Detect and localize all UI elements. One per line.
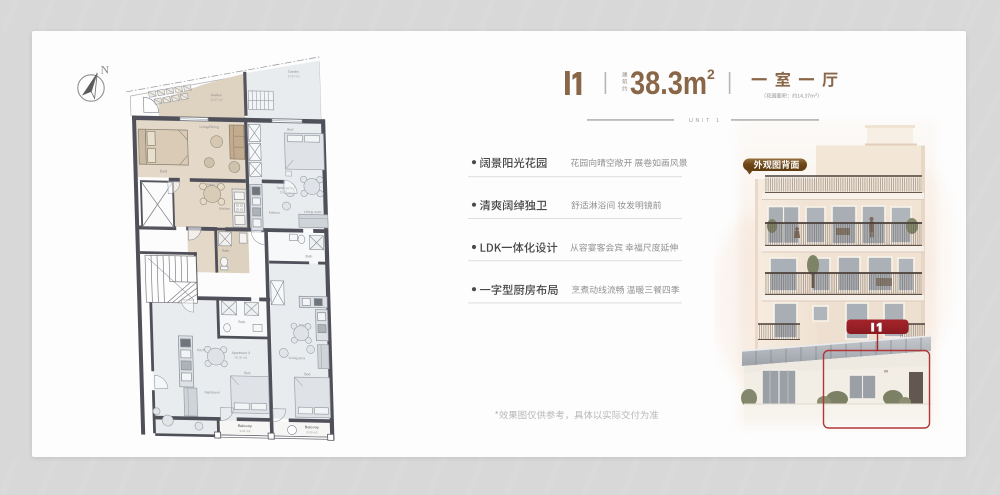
svg-text:38.3m: 38.3m xyxy=(630,65,707,101)
svg-text:2: 2 xyxy=(707,66,715,82)
svg-text:N: N xyxy=(101,63,110,77)
svg-text:UNIT 1: UNIT 1 xyxy=(689,118,722,124)
